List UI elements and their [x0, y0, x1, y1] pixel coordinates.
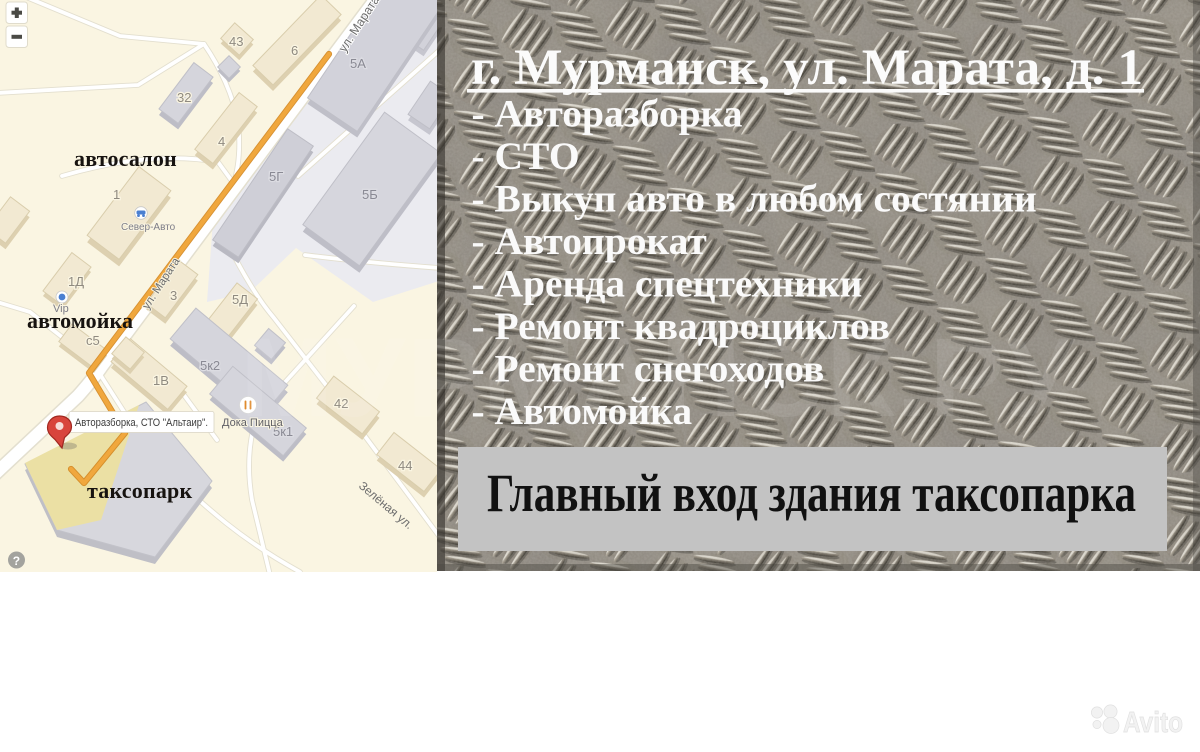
svg-text:1Д: 1Д [68, 274, 84, 289]
svg-text:5Б: 5Б [362, 187, 378, 202]
svg-text:- СТО: - СТО [472, 134, 580, 178]
svg-text:5Д: 5Д [232, 292, 248, 307]
svg-text:Avito: Avito [1123, 707, 1183, 739]
svg-text:5Г: 5Г [269, 169, 283, 184]
svg-text:МУРМАНСК.РУ: МУРМАНСК.РУ [240, 315, 1077, 440]
svg-text:3: 3 [170, 288, 177, 303]
svg-text:Север-Авто: Север-Авто [121, 222, 176, 233]
svg-text:5к2: 5к2 [200, 358, 220, 373]
svg-text:с5: с5 [86, 333, 100, 348]
svg-text:автомойка: автомойка [27, 308, 133, 333]
svg-text:1В: 1В [153, 373, 169, 388]
svg-text:Главный вход здания таксопарка: Главный вход здания таксопарка [487, 463, 1136, 523]
svg-text:таксопарк: таксопарк [87, 478, 192, 503]
svg-text:Авторазборка, СТО "Альтаир".: Авторазборка, СТО "Альтаир". [75, 417, 208, 429]
svg-text:- Авторазборка: - Авторазборка [472, 92, 743, 136]
svg-text:44: 44 [398, 458, 412, 473]
svg-text:5А: 5А [350, 56, 366, 71]
svg-text:4: 4 [218, 134, 225, 149]
svg-text:- Аренда спецтехники: - Аренда спецтехники [472, 262, 863, 306]
svg-text:1: 1 [113, 187, 120, 202]
svg-text:?: ? [13, 554, 20, 568]
svg-text:43: 43 [229, 34, 243, 49]
svg-text:6: 6 [291, 43, 298, 58]
svg-text:- Выкуп авто в любом состянии: - Выкуп авто в любом состянии [472, 177, 1037, 221]
svg-text:автосалон: автосалон [74, 146, 177, 171]
svg-text:г. Мурманск, ул. Марата, д. 1: г. Мурманск, ул. Марата, д. 1 [471, 40, 1143, 96]
svg-text:32: 32 [177, 90, 191, 105]
svg-text:- Автопрокат: - Автопрокат [472, 219, 707, 263]
